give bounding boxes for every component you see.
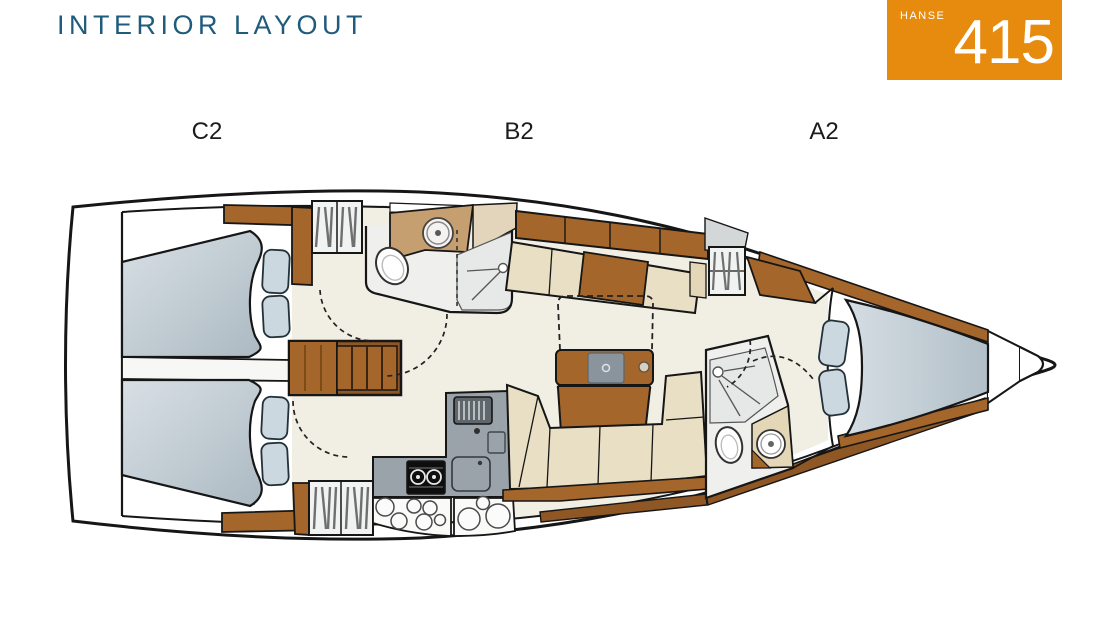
wardrobe-slats-icon — [709, 247, 745, 295]
pillow-icon — [818, 319, 850, 367]
boat-floorplan — [0, 0, 1120, 640]
table-inset — [588, 353, 624, 383]
wood-wedge — [293, 483, 310, 535]
stove-icon — [407, 461, 445, 494]
pillow-icon — [262, 249, 290, 293]
knob — [474, 428, 480, 434]
pillow-icon — [261, 442, 289, 485]
table-knob — [639, 362, 649, 372]
fridge-vent-icon — [454, 397, 492, 424]
lid-knob — [478, 461, 482, 465]
page: INTERIOR LAYOUT HANSE 415 C2 B2 A2 — [0, 0, 1120, 640]
cabin-divider-strip — [122, 357, 290, 381]
sink-icon — [423, 218, 453, 248]
companionway-stairs-icon — [289, 341, 401, 395]
wood-cabinet-block — [579, 252, 648, 305]
pillow-icon — [261, 396, 289, 439]
bow-locker — [988, 331, 1043, 403]
pillow-icon — [262, 295, 290, 337]
wardrobe-slats-icon — [312, 201, 362, 253]
wardrobe-slats-icon — [309, 481, 373, 535]
pillow-icon — [818, 368, 850, 416]
tan-shelf — [690, 262, 706, 298]
sink-icon — [757, 430, 785, 458]
wood-locker-column — [292, 207, 312, 285]
